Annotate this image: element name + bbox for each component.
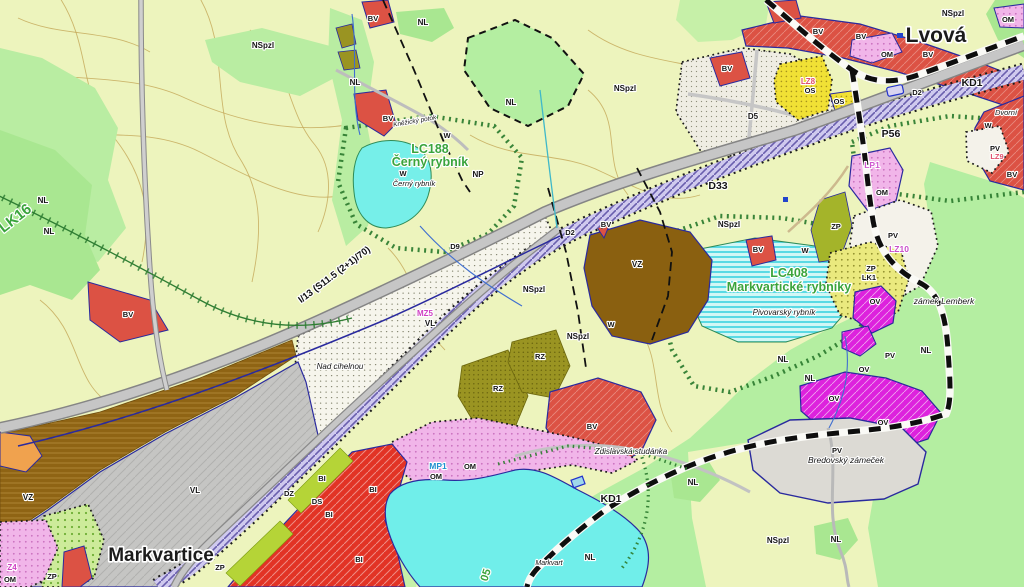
zone-label-vl-53: VL: [425, 319, 435, 328]
zone-label-bv-39: BV: [856, 32, 866, 41]
change-lz8: LZ8: [801, 77, 816, 86]
zone-label-nspzl-12: NSpzl: [942, 9, 964, 18]
zoning-map-viewport[interactable]: Lvová Markvartice LC188 Černý rybník LC4…: [0, 0, 1024, 587]
biocentre-lc408: LC408: [770, 266, 808, 280]
zone-label-nl-17: NL: [38, 196, 49, 205]
blue-marker-3: [783, 197, 788, 202]
zone-label-bi-62: BI: [355, 555, 363, 564]
zone-label-nl-26: NL: [831, 535, 842, 544]
blue-marker-1: [897, 33, 903, 38]
zone-label-nl-19: NL: [418, 18, 429, 27]
zone-label-bi-59: BI: [318, 474, 326, 483]
zone-label-bv-34: BV: [368, 14, 378, 23]
zone-label-ov-72: OV: [870, 297, 881, 306]
place-cerny-rybnik: Černý rybník: [393, 179, 437, 188]
zone-label-om-46: OM: [1002, 15, 1014, 24]
change-mz5: MZ5: [417, 309, 434, 318]
area-d5: D5: [748, 112, 759, 121]
corridor-dz: DZ: [284, 489, 294, 498]
zone-label-w-29: W: [399, 169, 407, 178]
biocentre-lc408-name: Markvartické rybníky: [727, 280, 851, 294]
zone-label-rz-57: RZ: [493, 384, 503, 393]
zone-label-nl-27: NL: [585, 553, 596, 562]
zone-label-vz-56: VZ: [23, 493, 33, 502]
area-p56: P56: [882, 128, 901, 140]
route-kd1-north: KD1: [961, 77, 982, 89]
zone-label-om-47: OM: [876, 188, 888, 197]
change-mp1: MP1: [429, 461, 447, 471]
zone-label-om-48: OM: [430, 472, 442, 481]
road-d9: D9: [450, 242, 460, 251]
zone-label-w-28: W: [443, 131, 451, 140]
place-zdislavska-studanka: Zdislavská studánka: [594, 447, 668, 456]
zone-label-bv-42: BV: [753, 245, 763, 254]
change-lz9: LZ9: [990, 152, 1003, 161]
zone-label-pv-71: PV: [832, 446, 842, 455]
zone-label-vl-54: VL: [190, 486, 200, 495]
place-zamek-lemberk: zámek Lemberk: [913, 296, 975, 306]
town-label-markvartice: Markvartice: [108, 545, 214, 566]
zone-label-nspzl-13: NSpzl: [718, 220, 740, 229]
zone-label-nspzl-16: NSpzl: [767, 536, 789, 545]
zone-label-zp-63: ZP: [831, 222, 841, 231]
place-pivovarsky-rybnik: Pivovarský rybník: [753, 308, 817, 317]
zone-label-rz-58: RZ: [535, 352, 545, 361]
zone-label-nspzl-15: NSpzl: [567, 332, 589, 341]
zone-label-bi-61: BI: [325, 510, 333, 519]
change-lp1: LP1: [864, 160, 880, 170]
zone-label-pv-70: PV: [885, 351, 895, 360]
zone-label-nspzl-10: NSpzl: [252, 41, 274, 50]
zone-label-nl-22: NL: [778, 355, 789, 364]
place-nad-cihelnou: Nad cihelnou: [317, 362, 364, 371]
zone-label-np-33: NP: [472, 170, 484, 179]
zone-label-om-49: OM: [464, 462, 476, 471]
town-label-lvova: Lvová: [906, 24, 967, 47]
place-bredovsky-zamecek: Bredovský zámeček: [808, 455, 885, 465]
zone-label-lk1-67: LK1: [862, 273, 876, 282]
zone-label-bv-38: BV: [813, 27, 823, 36]
zone-label-nspzl-11: NSpzl: [614, 84, 636, 93]
zone-label-nl-25: NL: [688, 478, 699, 487]
zone-label-ov-73: OV: [859, 365, 870, 374]
corridor-d2-east: D2: [912, 88, 922, 97]
zone-label-bi-60: BI: [369, 485, 377, 494]
zone-label-pv-69: PV: [888, 231, 898, 240]
corridor-d2-center: D2: [565, 228, 575, 237]
zone-label-vz-55: VZ: [632, 260, 642, 269]
area-d33: D33: [708, 180, 727, 192]
zone-label-ov-75: OV: [878, 418, 889, 427]
zone-label-zp-66: ZP: [47, 572, 57, 581]
zone-label-bv-41: BV: [601, 220, 611, 229]
zone-label-bv-37: BV: [722, 64, 732, 73]
zone-label-w-32: W: [607, 320, 615, 329]
zone-label-bv-36: BV: [123, 310, 133, 319]
zone-label-nl-21: NL: [506, 98, 517, 107]
zone-label-os-52: OS: [834, 97, 845, 106]
zone-label-zp-65: ZP: [215, 563, 225, 572]
zoning-map: Lvová Markvartice LC188 Černý rybník LC4…: [0, 0, 1024, 587]
biocentre-lc188: LC188: [411, 142, 449, 156]
change-z4: Z4: [7, 563, 17, 572]
zone-label-nl-18: NL: [44, 227, 55, 236]
zone-label-om-45: OM: [881, 50, 893, 59]
change-lz10: LZ10: [889, 244, 909, 254]
zone-label-bv-40: BV: [923, 50, 933, 59]
zone-label-w-30: W: [984, 121, 992, 130]
zone-label-nspzl-14: NSpzl: [523, 285, 545, 294]
zone-label-w-31: W: [801, 246, 809, 255]
zone-label-nl-24: NL: [921, 346, 932, 355]
zone-label-os-51: OS: [805, 86, 816, 95]
route-kd1-south: KD1: [600, 493, 621, 505]
corridor-ds: DS: [312, 497, 322, 506]
zone-label-om-50: OM: [4, 575, 16, 584]
place-dvorni: Dvorní: [995, 108, 1018, 117]
zone-label-zp-64: ZP: [866, 264, 876, 273]
place-markvart: Markvart: [535, 560, 563, 567]
biocentre-lc188-name: Černý rybník: [392, 154, 468, 169]
zone-label-bv-44: BV: [1007, 170, 1017, 179]
zone-label-nl-23: NL: [805, 374, 816, 383]
zone-label-ov-74: OV: [829, 394, 840, 403]
zone-label-bv-43: BV: [587, 422, 597, 431]
zone-label-nl-20: NL: [350, 78, 361, 87]
